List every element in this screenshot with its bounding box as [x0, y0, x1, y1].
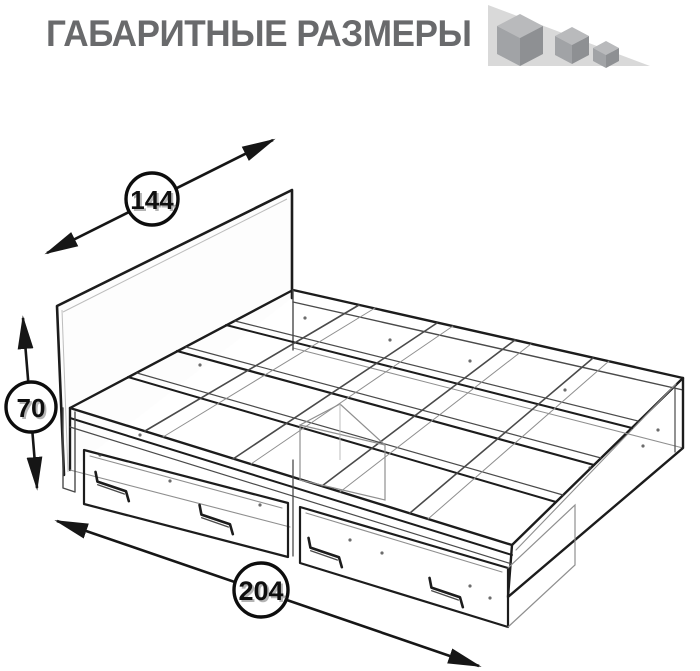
dimensions-page: ГАБАРИТНЫЕ РАЗМЕРЫ [0, 0, 700, 671]
height-dimension: 70 [6, 318, 56, 488]
width-dimension-value: 144 [130, 185, 174, 215]
height-dimension-value: 70 [17, 393, 46, 423]
length-dimension-value: 204 [238, 576, 283, 606]
drawer-handle-icon [304, 538, 347, 567]
drawer-handle-icon [195, 505, 238, 534]
center-support [300, 404, 385, 500]
drawer-right [293, 460, 575, 627]
bed-dimensions-drawing: 144 70 204 [0, 0, 700, 671]
drawer-handle-icon [91, 472, 134, 501]
length-dimension: 204 [57, 521, 479, 666]
